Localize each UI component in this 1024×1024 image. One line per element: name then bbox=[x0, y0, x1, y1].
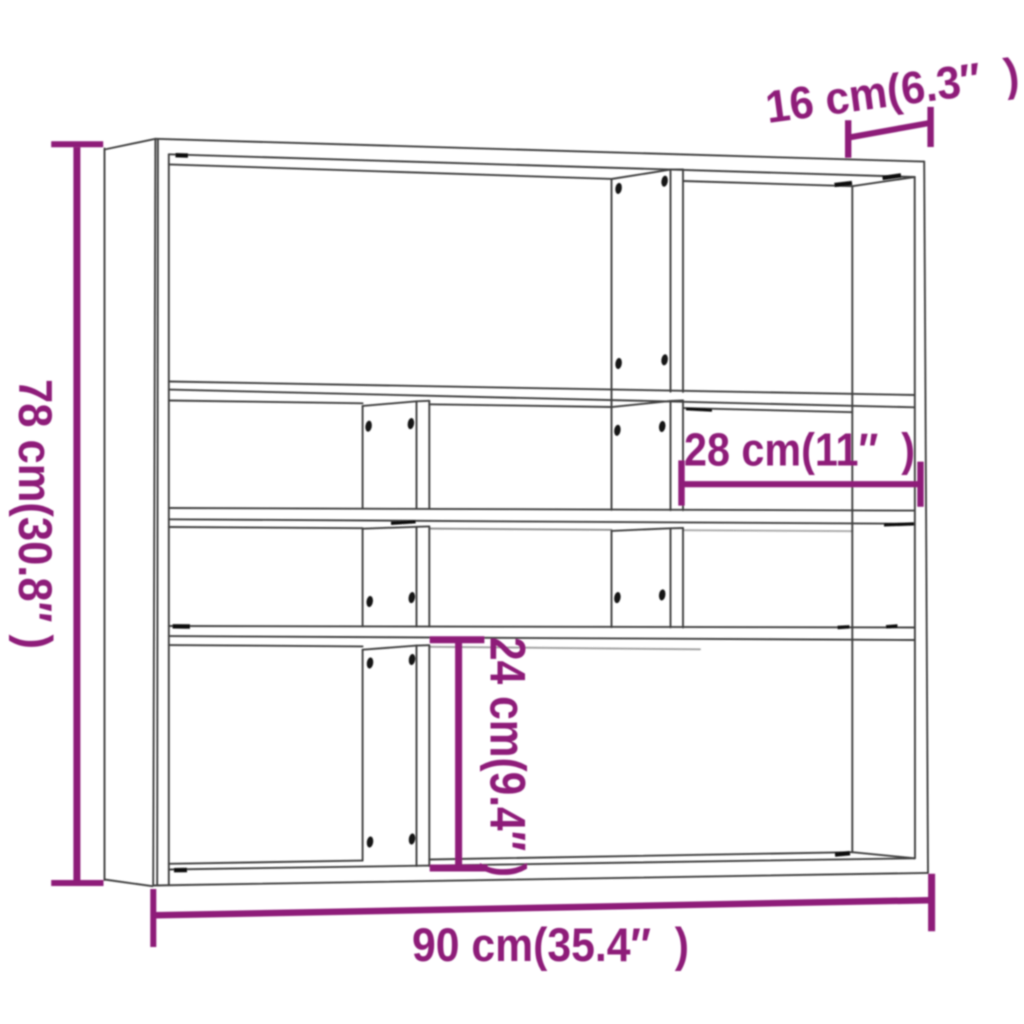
svg-text:28 cm(11″ ): 28 cm(11″ ) bbox=[684, 423, 915, 475]
svg-text:24 cm(9.4″ ): 24 cm(9.4″ ) bbox=[480, 637, 536, 877]
svg-text:90 cm(35.4″ ): 90 cm(35.4″ ) bbox=[412, 919, 689, 972]
svg-text:78 cm(30.8″ ): 78 cm(30.8″ ) bbox=[9, 379, 62, 649]
